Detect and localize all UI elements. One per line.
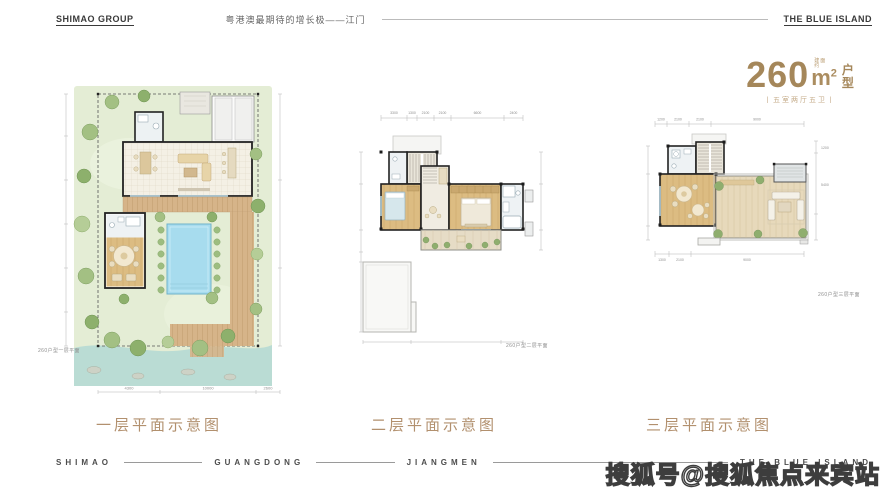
dim-label: 2400 — [510, 111, 518, 115]
terrace — [421, 230, 501, 250]
unit-area-number: 260 — [746, 60, 809, 90]
third-floor-plan: 1200 2100 2100 9000 1300 2100 9000 1200 … — [640, 116, 856, 302]
plan2-mini-label: 260户型二层平面 — [506, 342, 548, 349]
unit-type-label: 户型 — [842, 64, 854, 90]
footer-divider — [316, 462, 394, 463]
unit-title-block: 260 建面约 m2 户型 丨五室两厅五卫丨 — [744, 60, 856, 105]
water-stream — [74, 345, 272, 386]
blue-island-logo: THE BLUE ISLAND — [784, 14, 873, 26]
rear-deck — [123, 197, 252, 212]
small-table — [692, 204, 704, 216]
dining-table — [140, 152, 151, 174]
elevator-shaft — [774, 164, 806, 182]
dim-label: 2100 — [674, 118, 682, 122]
tv-console — [178, 188, 210, 191]
dim-label: 1200 — [657, 118, 665, 122]
dim-label: 2100 — [422, 111, 430, 115]
footer-word-shimao: SHIMAO — [56, 458, 112, 467]
step — [698, 238, 720, 245]
footer-word-guangdong: GUANGDONG — [214, 458, 304, 467]
outdoor-sofa — [772, 192, 800, 199]
lower-deck — [170, 324, 254, 346]
dim-label: 2600 — [264, 386, 274, 391]
dim-label: 3300 — [390, 111, 398, 115]
wardrobe — [407, 186, 419, 191]
unit-area-prefix: 建面约 — [814, 59, 826, 69]
ac-ledge — [525, 190, 533, 202]
coffee-table — [184, 168, 197, 177]
outdoor-table — [778, 202, 791, 212]
footer-word-jiangmen: JIANGMEN — [407, 458, 481, 467]
swimming-pool — [167, 224, 211, 294]
unit-spec-label: 丨五室两厅五卫丨 — [744, 95, 856, 105]
entry-walk — [180, 92, 210, 114]
plan1-mini-label: 260户型一层平面 — [38, 347, 80, 354]
plan3-mini-label: 260户型三层平面 — [818, 291, 860, 298]
second-floor-plan: 3300 1300 2100 2100 6600 2400 — [345, 106, 550, 350]
first-floor-plan: 4300 10000 2600 — [60, 84, 288, 402]
plan2-caption: 二层平面示意图 — [328, 414, 540, 435]
dim-label: 1200 — [821, 146, 829, 150]
sohu-watermark: 搜狐号@搜狐焦点来宾站 — [606, 455, 880, 490]
dim-label: 9000 — [743, 258, 751, 262]
shimao-group-logo: SHIMAO GROUP — [56, 14, 134, 26]
dim-label: 5400 — [821, 183, 829, 187]
sofa — [178, 154, 208, 163]
footer-divider — [124, 462, 202, 463]
dim-label: 9000 — [753, 118, 761, 122]
header-tagline: 粤港澳最期待的增长极——江门 — [226, 13, 366, 26]
ac-ledge — [525, 222, 533, 236]
unit-area-row: 260 建面约 m2 户型 — [744, 60, 856, 90]
dim-label: 2100 — [676, 258, 684, 262]
dim-label: 6600 — [474, 111, 482, 115]
garden-pavilion — [105, 213, 145, 288]
header-divider — [382, 19, 768, 20]
bathtub — [503, 216, 521, 228]
unit-area-unit-wrap: 建面约 m2 — [811, 68, 837, 90]
header-bar: SHIMAO GROUP 粤港澳最期待的增长极——江门 THE BLUE ISL… — [56, 13, 872, 26]
pool-area — [158, 212, 254, 357]
second-floor-rooms — [380, 151, 534, 237]
plan1-caption: 一层平面示意图 — [53, 414, 265, 435]
roof-terrace — [698, 163, 808, 245]
dim-label: 2100 — [439, 111, 447, 115]
plan3-caption: 三层平面示意图 — [603, 414, 815, 435]
dim-label: 4300 — [125, 386, 135, 391]
dim-label: 10000 — [202, 386, 214, 391]
dim-label: 2100 — [696, 118, 704, 122]
console-table — [720, 180, 754, 185]
void-roof-below — [363, 262, 416, 332]
dim-label: 1300 — [408, 111, 416, 115]
kitchen-island — [228, 148, 236, 178]
dim-label: 1300 — [658, 258, 666, 262]
